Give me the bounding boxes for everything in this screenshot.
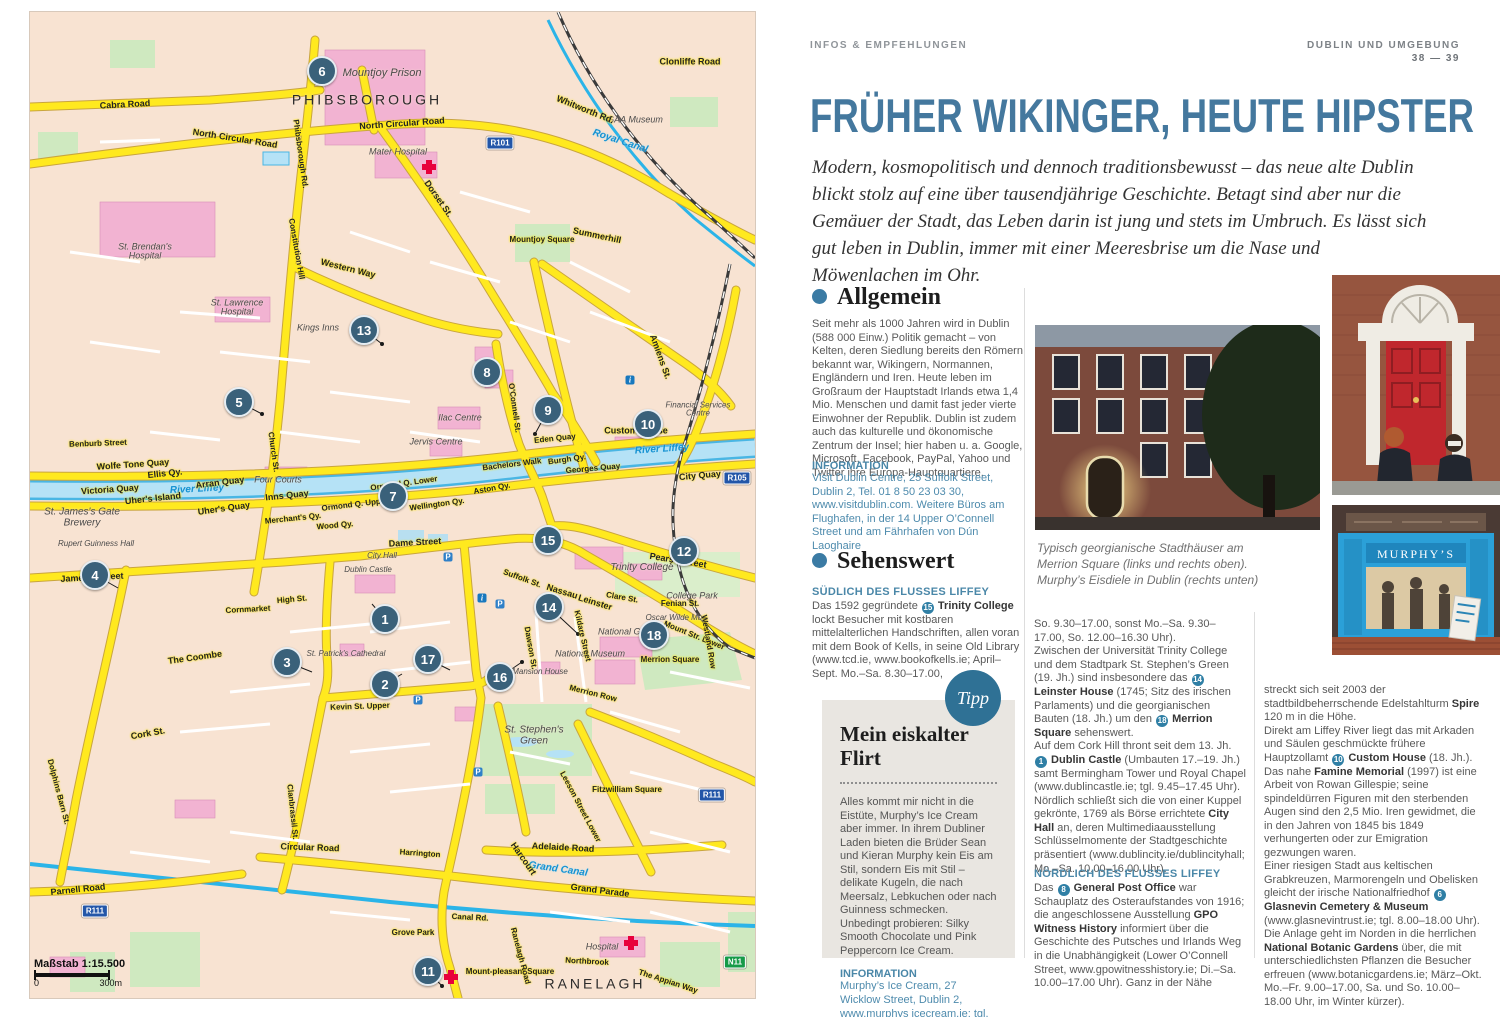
inline-map-marker: 1: [1035, 756, 1047, 768]
section-heading-label: Sehenswert: [837, 548, 954, 574]
map-marker-15: 15: [533, 525, 563, 555]
inline-map-marker: 10: [1332, 754, 1344, 766]
sehenswert-col3: streckt sich seit 2003 der stadtbildbehe…: [1264, 684, 1484, 1009]
section-heading-label: Allgemein: [837, 284, 941, 310]
column-rule: [1024, 288, 1025, 958]
inline-map-marker: 14: [1192, 674, 1204, 686]
page-numbers: 38 — 39: [1412, 53, 1460, 64]
map-marker-8: 8: [472, 357, 502, 387]
map-marker-6: 6: [307, 56, 337, 86]
section-bullet-icon: [812, 553, 827, 568]
intro-paragraph: Modern, kosmopolitisch und dennoch tradi…: [812, 155, 1430, 290]
inline-map-marker: 15: [922, 602, 934, 614]
inline-map-marker: 18: [1156, 715, 1168, 727]
photo-georgian-houses: [1035, 325, 1320, 530]
information-label: INFORMATION: [840, 968, 997, 980]
allgemein-body: Seit mehr als 1000 Jahren wird in Dublin…: [812, 318, 1024, 480]
header-right: DUBLIN UND UMGEBUNG: [1307, 40, 1460, 51]
map-marker-4: 4: [80, 560, 110, 590]
scale-bar: [34, 973, 110, 977]
inline-map-marker: 8: [1058, 884, 1070, 896]
map-marker-7: 7: [378, 481, 408, 511]
murphys-sign-text: MURPHY’S: [1377, 547, 1455, 561]
tip-body: Alles kommt mir nicht in die Eistüte, Mu…: [840, 796, 997, 958]
tipp-badge: Tipp: [945, 670, 1001, 726]
map-marker-layer: 123456789101112131415161718: [30, 12, 755, 998]
scale-label: Maßstab 1:15.500: [34, 958, 125, 970]
information-body: Murphy’s Ice Cream, 27 Wicklow Street, D…: [840, 980, 997, 1017]
map-marker-2: 2: [370, 669, 400, 699]
map-marker-9: 9: [533, 395, 563, 425]
inline-map-marker: 6: [1434, 889, 1446, 901]
information-label: INFORMATION: [812, 460, 1024, 472]
header-left: INFOS & EMPFEHLUNGEN: [810, 40, 967, 51]
section-heading-allgemein: Allgemein: [812, 284, 941, 311]
map-marker-1: 1: [370, 604, 400, 634]
subhead-north-liffey: NÖRDLICH DES FLUSSES LIFFEY: [1034, 868, 1221, 880]
map-marker-10: 10: [633, 409, 663, 439]
sehenswert-col2b: Das 8 General Post Office war Schauplatz…: [1034, 882, 1246, 991]
photo-caption: Typisch georgianische Stadthäuser am Mer…: [1037, 540, 1277, 589]
map-marker-3: 3: [272, 647, 302, 677]
map-marker-16: 16: [485, 662, 515, 692]
photo-murphys-shop: MURPHY’S: [1332, 505, 1500, 655]
dotted-divider: [840, 782, 997, 784]
photo-red-door: [1332, 275, 1500, 495]
tip-heading: Mein eiskalter Flirt: [840, 722, 997, 770]
map-scale: Maßstab 1:15.500 0 300m: [34, 958, 125, 988]
page-title: FRÜHER WIKINGER, HEUTE HIPSTER: [810, 88, 1474, 143]
map-marker-17: 17: [413, 644, 443, 674]
map-marker-11: 11: [413, 956, 443, 986]
scale-distance: 300m: [99, 978, 122, 988]
tip-box: Tipp Mein eiskalter Flirt Alles kommt mi…: [822, 700, 1015, 958]
city-map: PHIBSBOROUGHRANELAGHMountjoy PrisonSt. B…: [30, 12, 755, 998]
column-rule: [1254, 612, 1255, 958]
guidebook-spread: PHIBSBOROUGHRANELAGHMountjoy PrisonSt. B…: [0, 0, 1500, 1017]
map-marker-5: 5: [224, 387, 254, 417]
section-bullet-icon: [812, 289, 827, 304]
sehenswert-col1: Das 1592 gegründete 15 Trinity College l…: [812, 600, 1024, 682]
subhead-south-liffey: SÜDLICH DES FLUSSES LIFFEY: [812, 586, 989, 598]
map-marker-12: 12: [669, 536, 699, 566]
map-marker-13: 13: [349, 315, 379, 345]
sehenswert-col2a: So. 9.30–17.00, sonst Mo.–Sa. 9.30–17.00…: [1034, 618, 1246, 876]
map-marker-14: 14: [534, 592, 564, 622]
map-marker-18: 18: [639, 620, 669, 650]
information-body: Visit Dublin Centre, 25 Suffolk Street, …: [812, 472, 1024, 553]
section-heading-sehenswert: Sehenswert: [812, 548, 954, 575]
